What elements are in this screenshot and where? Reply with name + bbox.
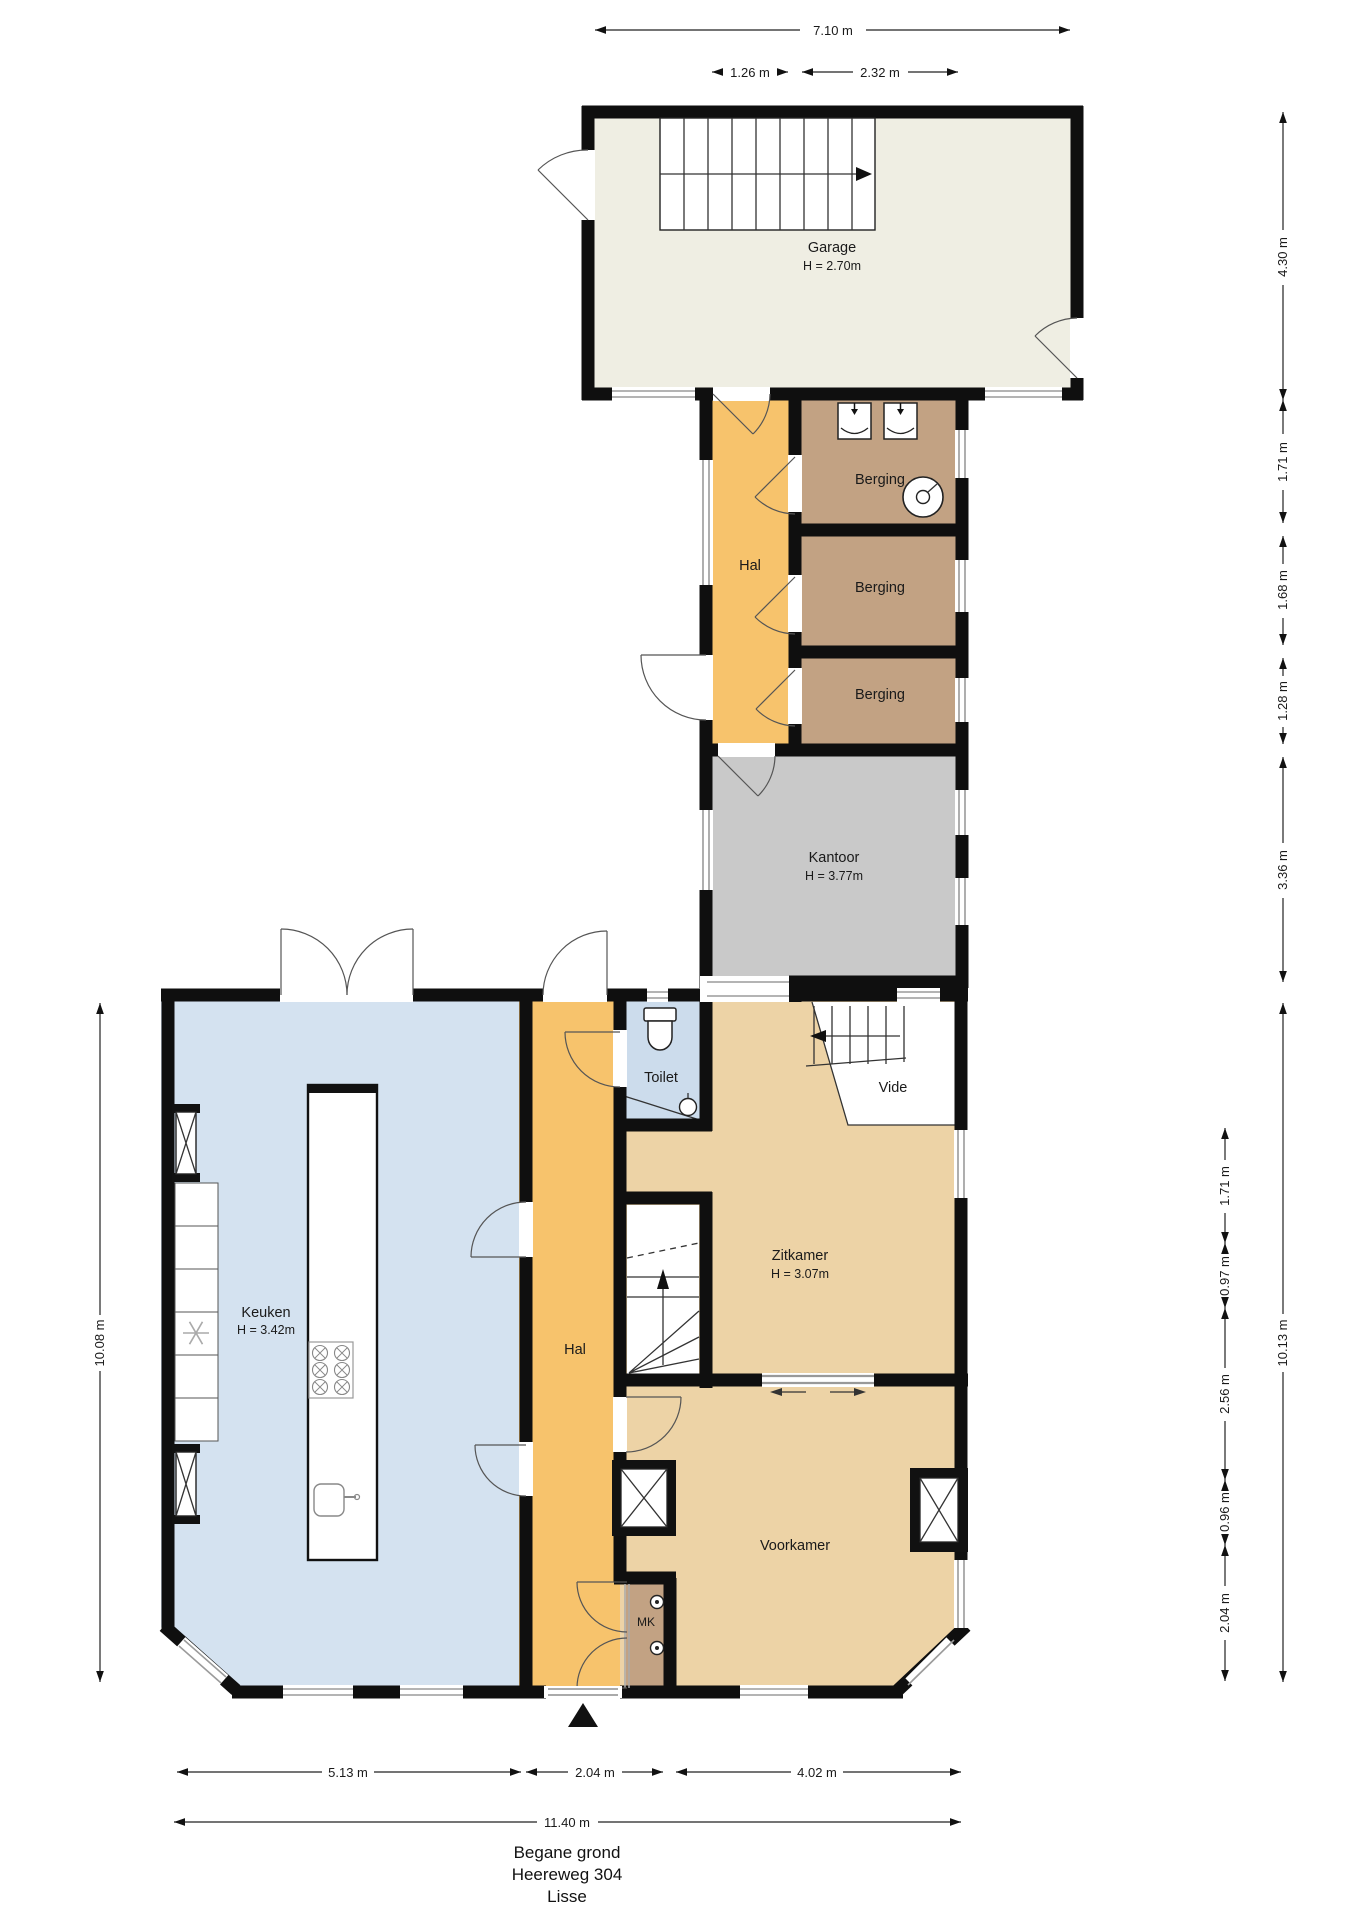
svg-text:2.04 m: 2.04 m: [1217, 1593, 1232, 1633]
label-garage-height: H = 2.70m: [803, 259, 861, 273]
dimension-right-berging-3: 1.28 m: [1275, 658, 1290, 744]
svg-text:0.96 m: 0.96 m: [1217, 1492, 1232, 1532]
stairs-garage: [660, 118, 875, 230]
label-kantoor: Kantoor: [809, 850, 860, 866]
svg-text:5.13 m: 5.13 m: [328, 1765, 368, 1780]
svg-text:2.32 m: 2.32 m: [860, 65, 900, 80]
window-berging-2: [955, 560, 969, 612]
label-voorkamer: Voorkamer: [760, 1538, 830, 1554]
door-entrance-side: [543, 931, 607, 995]
svg-text:0.97 m: 0.97 m: [1217, 1256, 1232, 1296]
vent-box-upper: [172, 1104, 200, 1182]
window-zitkamer-top: [897, 988, 940, 1002]
svg-text:10.13 m: 10.13 m: [1275, 1320, 1290, 1367]
threshold-kantoor: [700, 976, 789, 1002]
label-meterkast: MK: [637, 1615, 655, 1629]
svg-text:3.36 m: 3.36 m: [1275, 850, 1290, 890]
label-zitkamer: Zitkamer: [772, 1248, 829, 1264]
dimension-bottom-hal: 2.04 m: [526, 1765, 663, 1780]
svg-text:2.04 m: 2.04 m: [575, 1765, 615, 1780]
window-berging-3: [955, 678, 969, 722]
dimension-top-berging: 2.32 m: [802, 65, 958, 80]
svg-text:10.08 m: 10.08 m: [92, 1320, 107, 1367]
kitchen-counter: [175, 1183, 218, 1441]
room-berging-1: [789, 394, 968, 536]
footer-floor-name: Begane grond: [514, 1843, 621, 1862]
svg-text:1.71 m: 1.71 m: [1275, 442, 1290, 482]
window-hal-boven: [699, 460, 713, 585]
entrance-arrow: [568, 1703, 598, 1727]
dimension-right-berging-2: 1.68 m: [1275, 536, 1290, 645]
floor-plan-svg: Garage H = 2.70m Hal Berging Berging Ber…: [0, 0, 1358, 1920]
dimension-left-house: 10.08 m: [92, 1003, 107, 1682]
window-zitkamer-right: [954, 1130, 968, 1198]
label-berging-3: Berging: [855, 687, 905, 703]
svg-text:1.71 m: 1.71 m: [1217, 1166, 1232, 1206]
shaft-voorkamer: [910, 1468, 968, 1552]
label-garage: Garage: [808, 240, 856, 256]
svg-text:4.02 m: 4.02 m: [797, 1765, 837, 1780]
dimension-inner-3: 2.56 m: [1217, 1308, 1232, 1480]
window-voorkamer-bottom: [740, 1685, 808, 1699]
window-keuken-bottom-1: [283, 1685, 353, 1699]
label-vide: Vide: [879, 1080, 908, 1096]
dimension-right-kantoor: 3.36 m: [1275, 757, 1290, 982]
svg-text:2.56 m: 2.56 m: [1217, 1374, 1232, 1414]
dimension-inner-2: 0.97 m: [1217, 1243, 1232, 1308]
shaft-hal: [612, 1460, 676, 1536]
label-hal-boven: Hal: [739, 558, 761, 574]
meter-icon-2: [651, 1642, 664, 1655]
label-hal: Hal: [564, 1342, 586, 1358]
french-doors-keuken: [281, 929, 413, 995]
room-hal: [519, 989, 627, 1692]
washer-icon-1: [838, 403, 871, 439]
stove-icon: [309, 1342, 353, 1398]
label-toilet: Toilet: [644, 1070, 678, 1086]
washer-icon-2: [884, 403, 917, 439]
dimension-right-garage: 4.30 m: [1275, 112, 1290, 400]
svg-text:7.10 m: 7.10 m: [813, 23, 853, 38]
floor-plan-page: Garage H = 2.70m Hal Berging Berging Ber…: [0, 0, 1358, 1920]
label-zitkamer-height: H = 3.07m: [771, 1267, 829, 1281]
label-kantoor-height: H = 3.77m: [805, 869, 863, 883]
meter-icon-1: [651, 1596, 664, 1609]
svg-text:4.30 m: 4.30 m: [1275, 237, 1290, 277]
svg-text:1.26 m: 1.26 m: [730, 65, 770, 80]
dimension-top-total: 7.10 m: [595, 23, 1070, 38]
window-garage-right: [985, 387, 1062, 401]
dimension-top-hal: 1.26 m: [712, 65, 788, 80]
dimension-inner-1: 1.71 m: [1217, 1128, 1232, 1243]
dimension-inner-5: 2.04 m: [1217, 1545, 1232, 1681]
dimension-bottom-keuken: 5.13 m: [177, 1765, 521, 1780]
dimension-bottom-voorkamer: 4.02 m: [676, 1765, 961, 1780]
vent-box-lower: [172, 1444, 200, 1524]
dimension-inner-4: 0.96 m: [1217, 1480, 1232, 1545]
window-toilet: [647, 988, 668, 1002]
label-berging-1: Berging: [855, 472, 905, 488]
window-kantoor-right-2: [955, 878, 969, 925]
label-berging-2: Berging: [855, 580, 905, 596]
room-berging-3: [789, 652, 968, 756]
window-garage-left: [612, 387, 695, 401]
door-hal-exterior: [641, 655, 706, 720]
footer-city: Lisse: [547, 1887, 587, 1906]
svg-text:1.28 m: 1.28 m: [1275, 681, 1290, 721]
window-kantoor-left: [699, 810, 713, 890]
dimension-right-berging-1: 1.71 m: [1275, 400, 1290, 523]
room-hal-boven: [700, 394, 801, 756]
svg-text:1.68 m: 1.68 m: [1275, 570, 1290, 610]
label-keuken: Keuken: [241, 1305, 290, 1321]
window-voorkamer-right: [954, 1560, 968, 1628]
footer-address: Heereweg 304: [512, 1865, 623, 1884]
window-kantoor-right-1: [955, 790, 969, 835]
dimension-right-house: 10.13 m: [1275, 1003, 1290, 1682]
window-berging-1: [955, 430, 969, 478]
door-garage-side: [538, 150, 588, 220]
front-door: [544, 1686, 622, 1698]
dimension-bottom-total: 11.40 m: [174, 1815, 961, 1830]
svg-text:11.40 m: 11.40 m: [544, 1815, 590, 1830]
boiler-icon: [903, 477, 943, 517]
label-keuken-height: H = 3.42m: [237, 1323, 295, 1337]
window-keuken-bottom-2: [400, 1685, 463, 1699]
